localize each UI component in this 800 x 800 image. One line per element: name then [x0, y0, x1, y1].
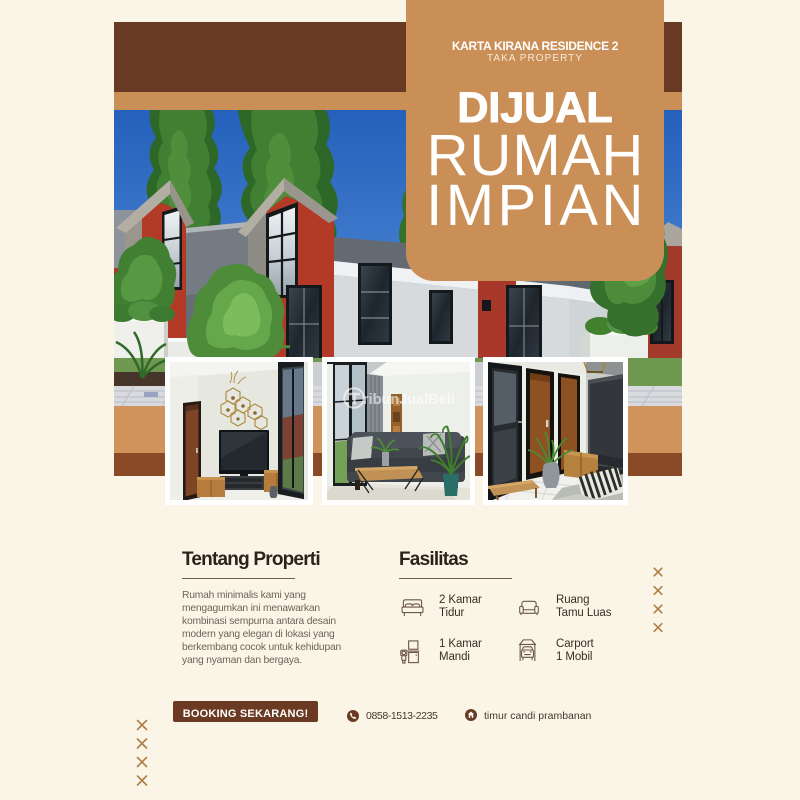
svg-text:ribunJualBeli: ribunJualBeli	[363, 392, 455, 408]
